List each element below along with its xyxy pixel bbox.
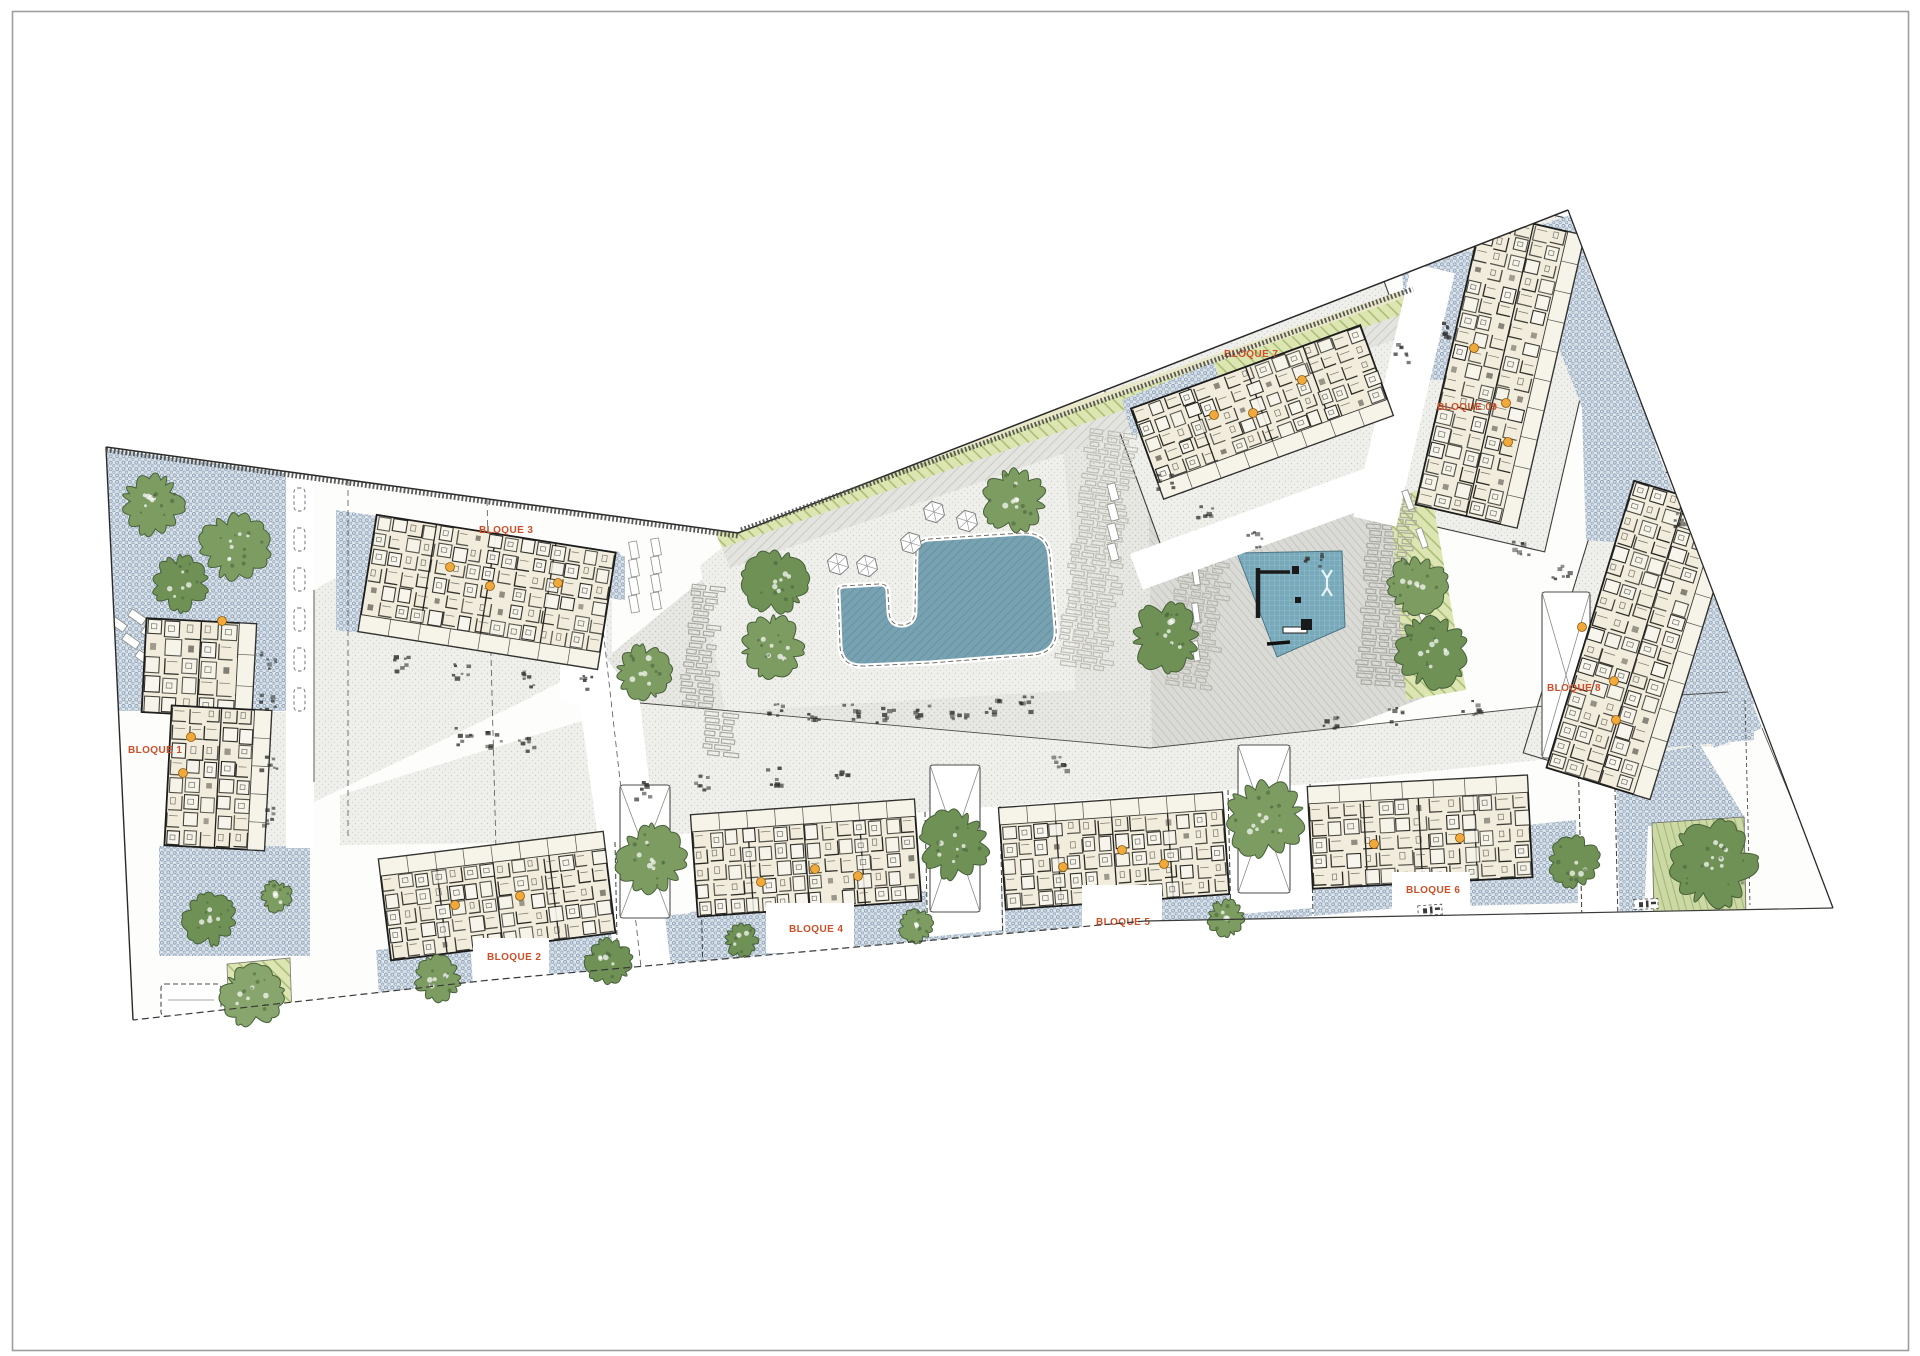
svg-text:BLOQUE 7: BLOQUE 7 <box>1224 349 1278 360</box>
svg-text:BLOQUE 1: BLOQUE 1 <box>128 745 182 756</box>
svg-text:BLOQUE 09: BLOQUE 09 <box>1437 402 1497 413</box>
svg-text:BLOQUE 3: BLOQUE 3 <box>479 525 533 536</box>
svg-text:BLOQUE'8: BLOQUE'8 <box>1547 683 1601 694</box>
svg-text:BLOQUE 4: BLOQUE 4 <box>789 924 843 935</box>
svg-text:BLOQUE 6: BLOQUE 6 <box>1406 885 1460 896</box>
svg-text:BLOQUE 2: BLOQUE 2 <box>487 952 541 963</box>
svg-text:BLOQUE 5: BLOQUE 5 <box>1096 917 1150 928</box>
